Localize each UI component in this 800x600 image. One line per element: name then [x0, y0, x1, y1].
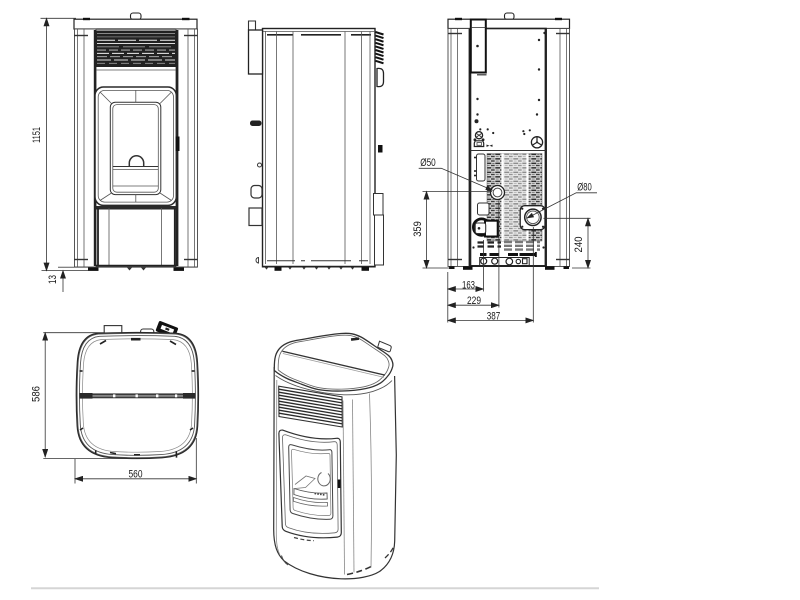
- svg-text:586: 586: [31, 386, 43, 402]
- svg-text:Ø80: Ø80: [577, 182, 592, 194]
- svg-text:163: 163: [462, 280, 475, 292]
- svg-text:387: 387: [487, 310, 501, 322]
- svg-text:13: 13: [47, 275, 59, 284]
- svg-text:560: 560: [129, 468, 143, 480]
- svg-text:240: 240: [573, 237, 585, 253]
- svg-text:1151: 1151: [31, 127, 43, 143]
- svg-text:359: 359: [412, 221, 424, 237]
- svg-text:229: 229: [467, 295, 481, 307]
- svg-text:Ø50: Ø50: [420, 157, 436, 169]
